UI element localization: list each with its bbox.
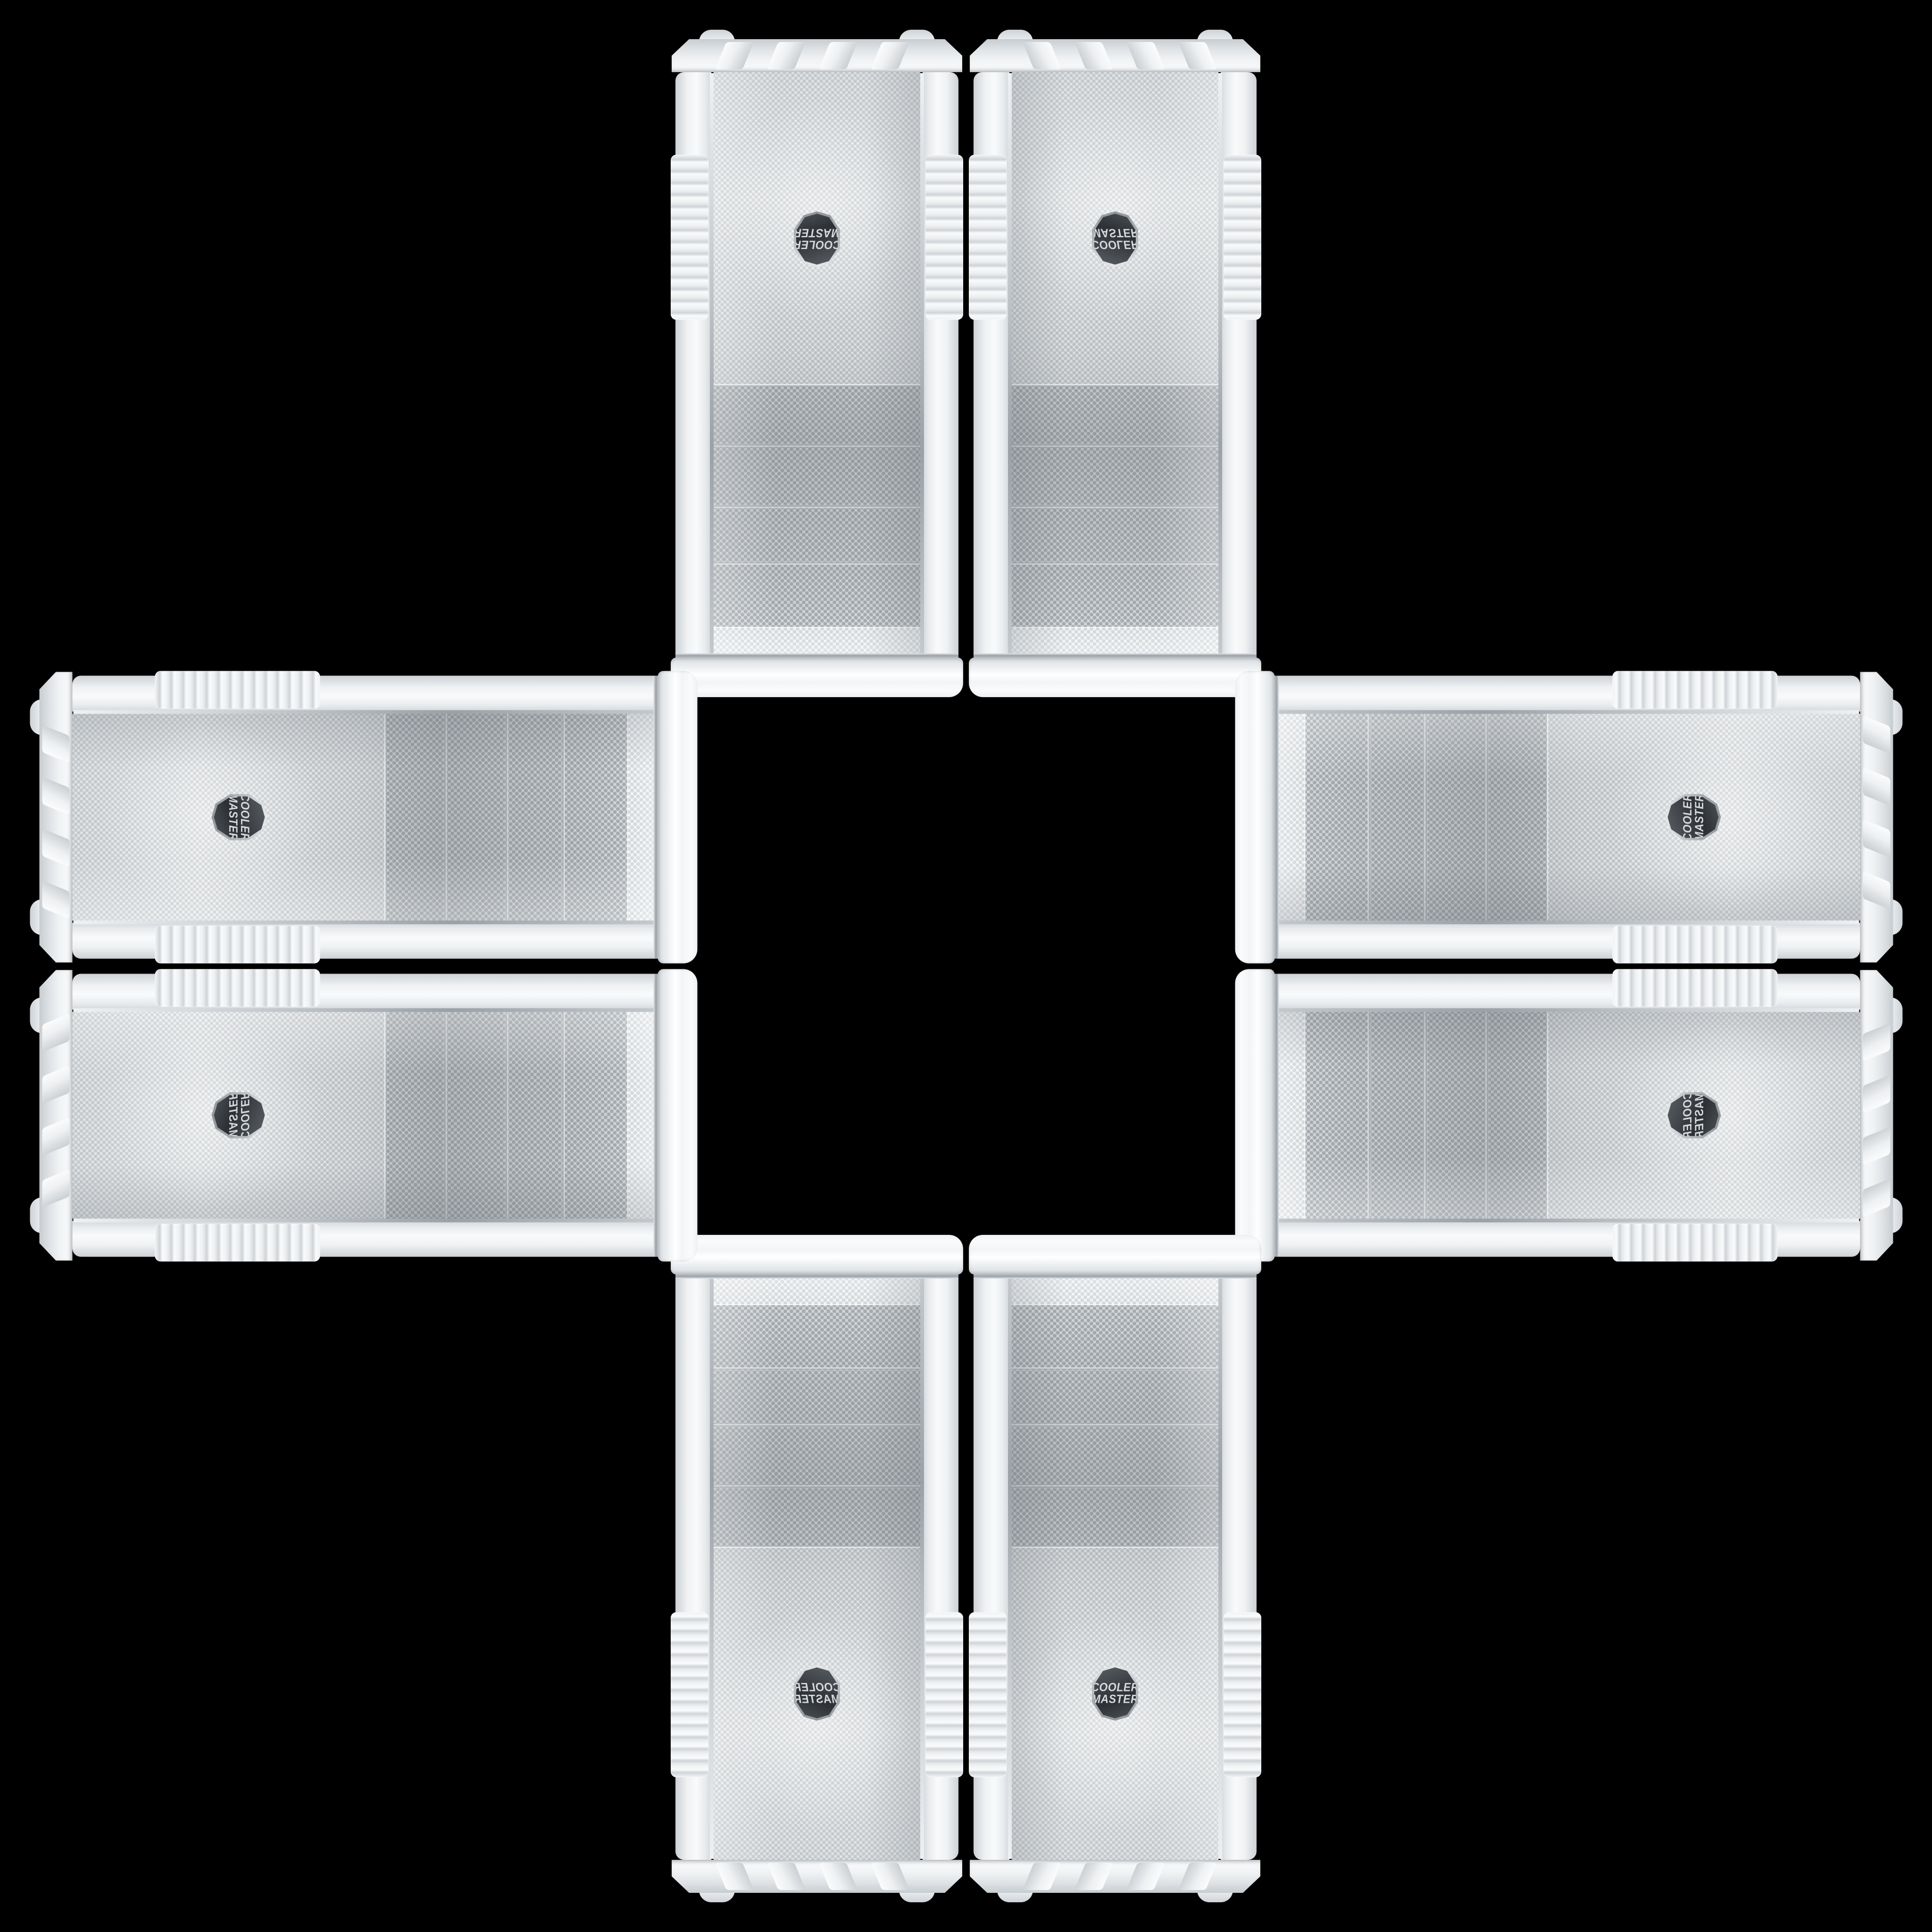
chrome-trim-left bbox=[920, 1279, 924, 1859]
rail-grip-ribs bbox=[1612, 1224, 1777, 1261]
badge-text-line2: MASTER bbox=[1091, 1693, 1139, 1705]
chrome-trim-left bbox=[73, 710, 653, 714]
badge-text-line2: MASTER bbox=[793, 1693, 841, 1705]
side-rail-right bbox=[675, 1274, 711, 1860]
fan-intake-mesh: COOLER MASTER bbox=[1547, 1012, 1860, 1218]
chrome-trim-top bbox=[675, 1274, 958, 1279]
bay-separator bbox=[1012, 443, 1218, 447]
chrome-trim-top bbox=[653, 675, 658, 958]
bay-separator bbox=[561, 1012, 565, 1218]
bay-separator bbox=[1485, 1012, 1489, 1218]
cooler-master-badge: COOLER MASTER bbox=[211, 794, 267, 840]
base-notch bbox=[1178, 1863, 1216, 1890]
badge-face: COOLER MASTER bbox=[214, 1094, 265, 1136]
front-mesh-panel: COOLER MASTER bbox=[1279, 714, 1860, 920]
case-top-panel bbox=[671, 658, 963, 697]
badge-face: COOLER MASTER bbox=[796, 1667, 838, 1718]
chrome-trim-right bbox=[710, 1279, 714, 1859]
base-notch bbox=[819, 42, 857, 69]
base-notch bbox=[1863, 715, 1890, 753]
badge-face: COOLER MASTER bbox=[796, 214, 838, 265]
bay-separator bbox=[1012, 1367, 1218, 1371]
badge-text-line2: MASTER bbox=[1693, 1091, 1705, 1139]
bay-separator bbox=[714, 1485, 920, 1489]
badge-face: COOLER MASTER bbox=[1094, 1667, 1136, 1718]
rail-grip-ribs bbox=[155, 925, 320, 963]
chrome-trim-top bbox=[1274, 974, 1279, 1257]
front-mesh-panel: COOLER MASTER bbox=[72, 714, 653, 920]
cooler-master-badge: COOLER MASTER bbox=[211, 1092, 267, 1138]
badge-text-line1: COOLER bbox=[1681, 1091, 1693, 1139]
bay-separator bbox=[1367, 1012, 1371, 1218]
top-vent-strip bbox=[1012, 628, 1218, 653]
badge-text-line1: COOLER bbox=[793, 239, 841, 251]
chrome-trim-top bbox=[1274, 675, 1279, 958]
case-base bbox=[39, 970, 72, 1260]
bay-separator bbox=[714, 505, 920, 508]
side-rail-right bbox=[72, 974, 658, 1009]
rail-grip-ribs bbox=[925, 1612, 963, 1777]
base-notch bbox=[1074, 42, 1113, 69]
front-mesh-panel: COOLER MASTER bbox=[1279, 1012, 1860, 1218]
side-rail-left bbox=[923, 1274, 958, 1860]
case-top-panel bbox=[671, 1235, 963, 1274]
pc-case-right-bottom: COOLER MASTER bbox=[1235, 974, 1893, 1257]
chrome-trim-top bbox=[653, 974, 658, 1257]
bay-separator bbox=[1424, 1012, 1427, 1218]
rail-grip-ribs bbox=[1224, 1612, 1261, 1777]
bay-separator bbox=[1012, 505, 1218, 508]
chrome-trim-left bbox=[1008, 1279, 1012, 1859]
base-notch bbox=[42, 1065, 69, 1103]
bay-separator bbox=[561, 714, 565, 920]
fan-intake-mesh: COOLER MASTER bbox=[72, 1012, 385, 1218]
bay-separator bbox=[1485, 714, 1489, 920]
badge-text-line2: MASTER bbox=[1693, 793, 1705, 841]
base-notch bbox=[42, 1117, 69, 1155]
case-top-panel bbox=[1235, 671, 1274, 963]
base-notch bbox=[715, 42, 753, 69]
drive-bay-covers bbox=[1012, 1304, 1218, 1548]
base-notch bbox=[42, 828, 69, 866]
pc-case-top-left: COOLER MASTER bbox=[675, 39, 958, 697]
base-notch bbox=[42, 1013, 69, 1051]
badge-face: COOLER MASTER bbox=[1094, 214, 1136, 265]
cooler-master-badge: COOLER MASTER bbox=[794, 211, 840, 267]
rail-grip-ribs bbox=[671, 155, 708, 320]
bay-separator bbox=[505, 1012, 508, 1218]
side-rail-right bbox=[72, 923, 658, 958]
cooler-master-badge: COOLER MASTER bbox=[1092, 211, 1138, 267]
front-mesh-panel: COOLER MASTER bbox=[1012, 1279, 1218, 1860]
badge-text-line2: MASTER bbox=[793, 227, 841, 240]
badge-text-line1: COOLER bbox=[1091, 1681, 1139, 1693]
chrome-trim-top bbox=[675, 653, 958, 658]
front-mesh-panel: COOLER MASTER bbox=[714, 72, 920, 653]
badge-text-line1: COOLER bbox=[1681, 793, 1693, 841]
base-notch bbox=[42, 1169, 69, 1207]
base-notch bbox=[1863, 767, 1890, 805]
top-vent-strip bbox=[714, 628, 920, 653]
fan-intake-mesh: COOLER MASTER bbox=[1012, 1547, 1218, 1860]
pc-case-left-bottom: COOLER MASTER bbox=[39, 974, 697, 1257]
side-rail-left bbox=[974, 1274, 1009, 1860]
bay-separator bbox=[1367, 714, 1371, 920]
bay-separator bbox=[714, 443, 920, 447]
base-notch bbox=[1126, 1863, 1165, 1890]
side-rail-left bbox=[974, 72, 1009, 658]
cooler-master-badge: COOLER MASTER bbox=[1665, 794, 1721, 840]
pc-case-bottom-left: COOLER MASTER bbox=[675, 1235, 958, 1893]
case-top-panel bbox=[1235, 969, 1274, 1261]
badge-text-line1: COOLER bbox=[239, 793, 251, 841]
chrome-trim-right bbox=[1218, 1279, 1222, 1859]
rail-grip-ribs bbox=[969, 155, 1007, 320]
rail-grip-ribs bbox=[1224, 155, 1261, 320]
badge-text-line2: MASTER bbox=[1091, 227, 1139, 240]
badge-face: COOLER MASTER bbox=[214, 796, 265, 838]
base-notch bbox=[819, 1863, 857, 1890]
chrome-trim-left bbox=[1008, 73, 1012, 653]
badge-text-line2: MASTER bbox=[227, 1091, 240, 1139]
side-rail-right bbox=[675, 72, 711, 658]
top-vent-strip bbox=[628, 714, 653, 920]
badge-text-line1: COOLER bbox=[239, 1091, 251, 1139]
front-mesh-panel: COOLER MASTER bbox=[714, 1279, 920, 1860]
case-base bbox=[1860, 970, 1893, 1260]
rail-grip-ribs bbox=[1612, 969, 1777, 1007]
bay-separator bbox=[1012, 561, 1218, 565]
fan-intake-mesh: COOLER MASTER bbox=[72, 714, 385, 920]
bay-separator bbox=[714, 1424, 920, 1427]
side-rail-left bbox=[1274, 923, 1860, 958]
bay-separator bbox=[505, 714, 508, 920]
base-notch bbox=[1863, 871, 1890, 909]
pc-case-top-right: COOLER MASTER bbox=[974, 39, 1257, 697]
chrome-trim-right bbox=[1279, 1218, 1859, 1222]
chrome-trim-left bbox=[920, 73, 924, 653]
base-notch bbox=[42, 880, 69, 918]
chrome-trim-top bbox=[974, 1274, 1257, 1279]
side-rail-right bbox=[1274, 675, 1860, 711]
base-notch bbox=[767, 1863, 805, 1890]
chrome-trim-left bbox=[1279, 1008, 1859, 1012]
front-mesh-panel: COOLER MASTER bbox=[72, 1012, 653, 1218]
base-notch bbox=[1863, 1023, 1890, 1061]
drive-bay-covers bbox=[714, 1304, 920, 1548]
base-notch bbox=[1863, 1074, 1890, 1113]
drive-bay-covers bbox=[1012, 384, 1218, 628]
badge-text-line1: COOLER bbox=[1091, 239, 1139, 251]
base-notch bbox=[1074, 1863, 1113, 1890]
rail-grip-ribs bbox=[1612, 671, 1777, 708]
side-rail-right bbox=[1274, 1221, 1860, 1257]
case-base bbox=[672, 1860, 962, 1893]
base-notch bbox=[1863, 819, 1890, 857]
cooler-master-badge: COOLER MASTER bbox=[1665, 1092, 1721, 1138]
collage-stage: COOLER MASTER bbox=[0, 0, 1932, 1932]
side-rail-right bbox=[1221, 72, 1257, 658]
badge-text-line2: MASTER bbox=[227, 793, 240, 841]
cooler-master-badge: COOLER MASTER bbox=[794, 1665, 840, 1721]
base-notch bbox=[871, 1863, 909, 1890]
chrome-trim-right bbox=[1218, 73, 1222, 653]
bay-separator bbox=[1012, 1424, 1218, 1427]
case-base bbox=[970, 1860, 1260, 1893]
rail-grip-ribs bbox=[1612, 925, 1777, 963]
rail-grip-ribs bbox=[155, 969, 320, 1007]
case-top-panel bbox=[658, 671, 697, 963]
chrome-trim-right bbox=[710, 73, 714, 653]
chrome-trim-left bbox=[73, 1218, 653, 1222]
drive-bay-covers bbox=[714, 384, 920, 628]
bay-separator bbox=[714, 1367, 920, 1371]
side-rail-left bbox=[72, 675, 658, 711]
fan-intake-mesh: COOLER MASTER bbox=[714, 72, 920, 385]
rail-grip-ribs bbox=[155, 1224, 320, 1261]
top-vent-strip bbox=[1012, 1279, 1218, 1304]
top-vent-strip bbox=[1279, 714, 1304, 920]
rail-grip-ribs bbox=[925, 155, 963, 320]
side-rail-left bbox=[1274, 974, 1860, 1009]
case-base bbox=[39, 672, 72, 962]
rail-grip-ribs bbox=[969, 1612, 1007, 1777]
case-base bbox=[970, 39, 1260, 72]
chrome-trim-top bbox=[974, 653, 1257, 658]
base-notch bbox=[1126, 42, 1165, 69]
rail-grip-ribs bbox=[671, 1612, 708, 1777]
base-notch bbox=[1863, 1178, 1890, 1216]
base-notch bbox=[715, 1863, 753, 1890]
case-base bbox=[1860, 672, 1893, 962]
bay-separator bbox=[443, 714, 447, 920]
base-notch bbox=[1863, 1126, 1890, 1165]
chrome-trim-left bbox=[1279, 920, 1859, 924]
pc-case-right-top: COOLER MASTER bbox=[1235, 675, 1893, 958]
chrome-trim-right bbox=[1279, 710, 1859, 714]
base-notch bbox=[1178, 42, 1216, 69]
case-top-panel bbox=[969, 658, 1261, 697]
base-notch bbox=[871, 42, 909, 69]
top-vent-strip bbox=[714, 1279, 920, 1304]
bay-separator bbox=[714, 561, 920, 565]
side-rail-right bbox=[1221, 1274, 1257, 1860]
badge-text-line1: COOLER bbox=[793, 1681, 841, 1693]
base-notch bbox=[42, 776, 69, 815]
fan-intake-mesh: COOLER MASTER bbox=[1547, 714, 1860, 920]
drive-bay-covers bbox=[384, 1012, 628, 1218]
base-notch bbox=[1023, 42, 1061, 69]
base-notch bbox=[42, 724, 69, 763]
drive-bay-covers bbox=[1304, 714, 1548, 920]
fan-intake-mesh: COOLER MASTER bbox=[714, 1547, 920, 1860]
bay-separator bbox=[1424, 714, 1427, 920]
bay-separator bbox=[1012, 1485, 1218, 1489]
badge-face: COOLER MASTER bbox=[1667, 1094, 1718, 1136]
case-top-panel bbox=[658, 969, 697, 1261]
top-vent-strip bbox=[628, 1012, 653, 1218]
base-notch bbox=[767, 42, 805, 69]
drive-bay-covers bbox=[1304, 1012, 1548, 1218]
top-vent-strip bbox=[1279, 1012, 1304, 1218]
drive-bay-covers bbox=[384, 714, 628, 920]
chrome-trim-right bbox=[73, 1008, 653, 1012]
fan-intake-mesh: COOLER MASTER bbox=[1012, 72, 1218, 385]
rail-grip-ribs bbox=[155, 671, 320, 708]
badge-face: COOLER MASTER bbox=[1667, 796, 1718, 838]
case-base bbox=[672, 39, 962, 72]
case-top-panel bbox=[969, 1235, 1261, 1274]
chrome-trim-right bbox=[73, 920, 653, 924]
side-rail-left bbox=[72, 1221, 658, 1257]
bay-separator bbox=[443, 1012, 447, 1218]
cooler-master-badge: COOLER MASTER bbox=[1092, 1665, 1138, 1721]
pc-case-left-top: COOLER MASTER bbox=[39, 675, 697, 958]
pc-case-bottom-right: COOLER MASTER bbox=[974, 1235, 1257, 1893]
side-rail-left bbox=[923, 72, 958, 658]
base-notch bbox=[1023, 1863, 1061, 1890]
front-mesh-panel: COOLER MASTER bbox=[1012, 72, 1218, 653]
